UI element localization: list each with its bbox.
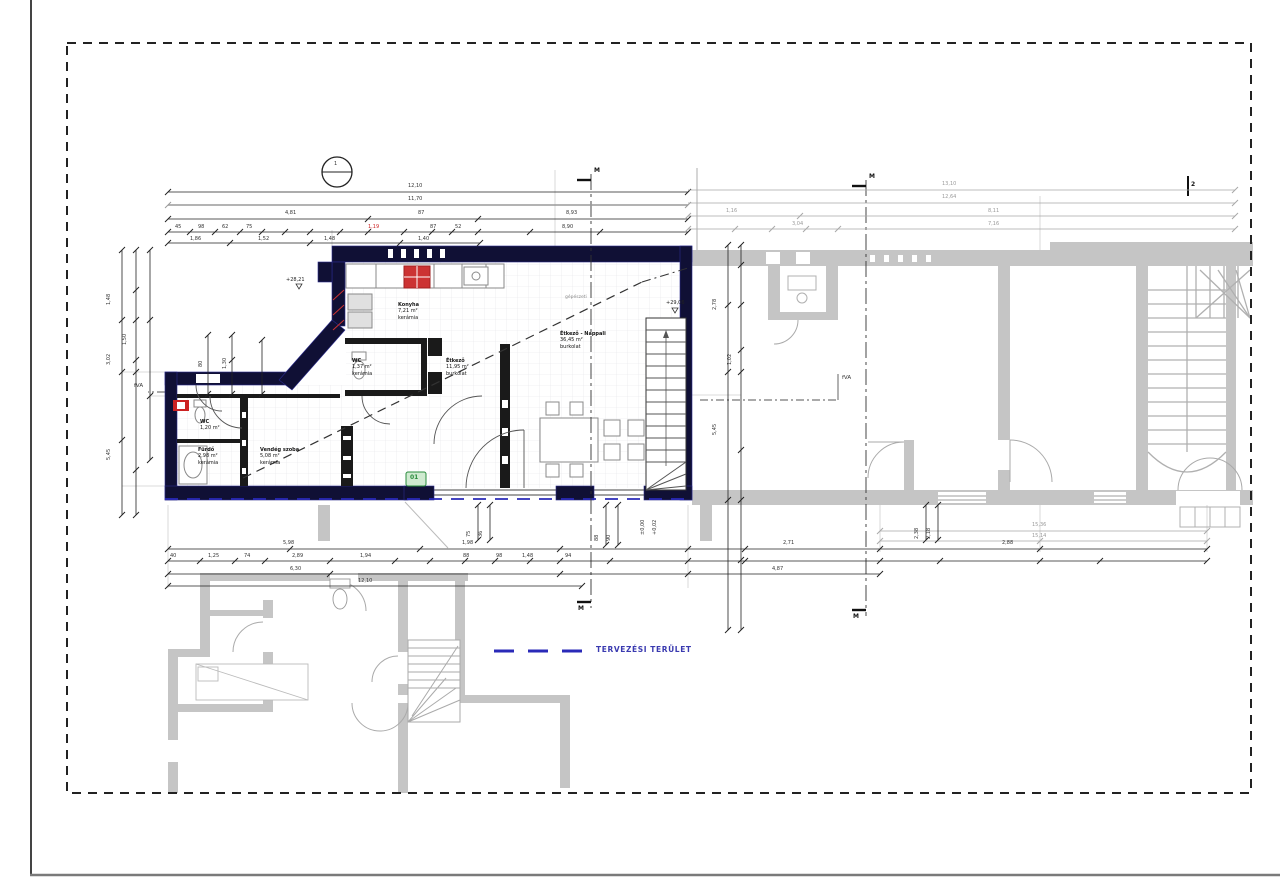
room-floor: kerámia (260, 460, 299, 466)
dim-label: 8,11 (988, 209, 999, 214)
dim-label: 1,86 (190, 237, 201, 242)
room-label-nappali: Étkező - Nappali 36,45 m² burkolat (560, 331, 606, 350)
dim-label: 5,45 (713, 424, 718, 435)
dim-label: 1,50 (123, 334, 128, 345)
room-label-konyha: Konyha 7,21 m² kerámia (398, 302, 419, 321)
room-floor: burkolat (560, 344, 606, 350)
dim-label: 87 (430, 225, 436, 230)
dim-label: 88 (463, 554, 469, 559)
dim-label: 2,78 (713, 299, 718, 310)
dim-label: 98 (496, 554, 502, 559)
dim-label: 2,38 (915, 528, 920, 539)
room-area: 7,21 m² (398, 308, 419, 314)
dim-label: 1,48 (522, 554, 533, 559)
room-area: 1,37 m² (352, 364, 372, 370)
dim-label: 45 (175, 225, 181, 230)
dim-label: 15,14 (1032, 534, 1046, 539)
dim-label: 5,45 (107, 449, 112, 460)
room-label-wc1: WC 1,37 m² kerámia (352, 358, 372, 377)
legend-dash-sample (488, 640, 608, 660)
section-label: M (594, 168, 600, 174)
dim-label: 1,25 (208, 554, 219, 559)
room-area: 1,20 m² (200, 425, 220, 431)
axis-number: 2 (1191, 182, 1195, 188)
dim-label: 12,10 (358, 579, 372, 584)
room-floor: kerámia (398, 315, 419, 321)
dim-label: 5,98 (283, 541, 294, 546)
dim-label: 15,36 (1032, 523, 1046, 528)
room-area: 11,95 m² (446, 364, 469, 370)
dim-label: 74 (244, 554, 250, 559)
level-label: +29,06 (666, 300, 685, 306)
dim-label: 36 (479, 531, 484, 537)
dim-label: 62 (222, 225, 228, 230)
level-label: +28,21 (286, 277, 305, 283)
room-label-furdo: Fürdő 2,98 m² kerámia (198, 447, 218, 466)
room-label-wc2: WC 1,20 m² (200, 419, 220, 432)
dim-label: 94 (565, 554, 571, 559)
dim-label: 13,10 (942, 182, 956, 187)
dim-label: 88 (595, 535, 600, 541)
dining-table (540, 418, 598, 462)
dim-label: 75 (246, 225, 252, 230)
note-label: gépészeti (565, 296, 587, 301)
room-floor: kerámia (352, 371, 372, 377)
drawing-sheet: Konyha 7,21 m² kerámia WC 1,37 m² kerámi… (0, 0, 1280, 882)
dim-label: 98 (198, 225, 204, 230)
dim-label: 12,64 (942, 195, 956, 200)
dim-label: 3,04 (792, 222, 803, 227)
dim-label: 52 (455, 225, 461, 230)
dim-label: 12,10 (408, 184, 422, 189)
axis-label: fVA (842, 376, 851, 382)
door-tag: 01 (410, 475, 418, 481)
dim-label: 11,70 (408, 197, 422, 202)
dim-label: 2,88 (1002, 541, 1013, 546)
dim-label: 1,94 (360, 554, 371, 559)
room-area: 2,98 m² (198, 453, 218, 459)
dim-label: 40 (170, 554, 176, 559)
dim-label: 8,90 (562, 225, 573, 230)
dim-label: 6,30 (290, 567, 301, 572)
level-label: +0,02 (653, 520, 658, 535)
dim-label: 1,52 (258, 237, 269, 242)
dim-label: 2,71 (783, 541, 794, 546)
dim-label: 75 (467, 531, 472, 537)
dim-label: 1,48 (107, 294, 112, 305)
floor-plan-canvas (0, 0, 1280, 882)
section-label: M (853, 614, 859, 620)
dim-label: 87 (418, 211, 424, 216)
dim-label: 4,81 (285, 211, 296, 216)
room-label-etkezo: Étkező 11,95 m² burkolat (446, 358, 469, 377)
dim-label: 4,87 (772, 567, 783, 572)
dim-label: 1,02 (728, 354, 733, 365)
room-label-vendeg: Vendég szoba 5,08 m² kerámia (260, 447, 299, 466)
room-floor: kerámia (198, 460, 218, 466)
dim-label: 8,93 (566, 211, 577, 216)
dim-label: 1,30 (223, 358, 228, 369)
section-label: M (869, 174, 875, 180)
dim-label: 1,19 (368, 225, 379, 230)
dim-label: 2,89 (292, 554, 303, 559)
dim-label: 90 (607, 535, 612, 541)
dim-label: 3,02 (107, 354, 112, 365)
legend-label: TERVEZÉSI TERÜLET (596, 645, 692, 654)
new-stair (646, 318, 686, 490)
bubble-number: 1 (334, 162, 337, 167)
legend: TERVEZÉSI TERÜLET (488, 640, 788, 662)
dim-label: 2,18 (927, 528, 932, 539)
dim-label: 1,16 (726, 209, 737, 214)
section-label: M (578, 606, 584, 612)
axis-label: fVA (134, 384, 143, 390)
dim-label: 1,98 (462, 541, 473, 546)
dim-label: 1,48 (324, 237, 335, 242)
level-label: ±0,00 (641, 520, 646, 535)
dim-label: 1,40 (418, 237, 429, 242)
room-floor: burkolat (446, 371, 469, 377)
dim-label: 80 (199, 361, 204, 367)
dim-label: 7,16 (988, 222, 999, 227)
